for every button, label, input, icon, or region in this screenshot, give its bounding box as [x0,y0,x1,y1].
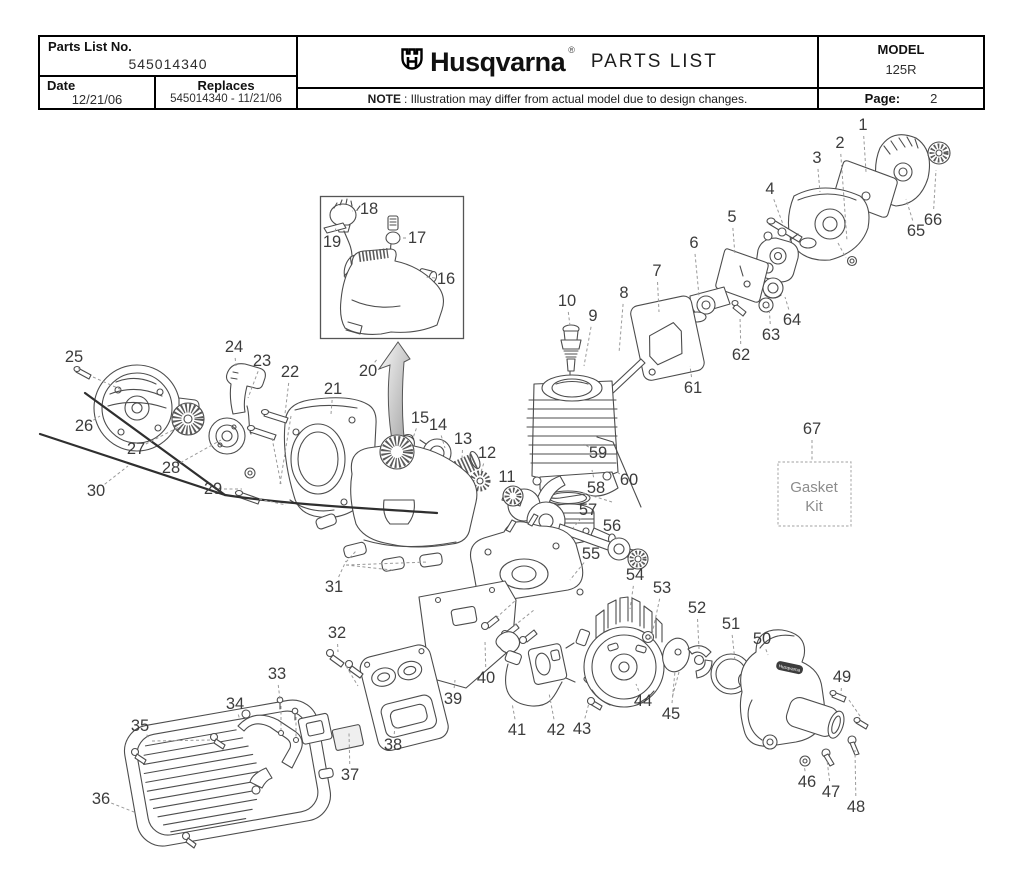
leader-line-64 [785,297,789,309]
part-carb-cover [788,188,869,260]
callout-60: 60 [620,471,638,489]
doc-title: PARTS LIST [591,51,718,73]
callout-65: 65 [907,222,925,240]
callout-48: 48 [847,798,865,816]
title-block-left: Parts List No. 545014340 Date 12/21/06 R… [40,37,298,108]
callout-9: 9 [588,307,597,325]
callout-53: 53 [653,579,671,597]
callout-39: 39 [444,690,462,708]
callout-51: 51 [722,615,740,633]
note-row: NOTE : Illustration may differ from actu… [298,89,817,108]
callout-26: 26 [75,417,93,435]
replaces-value: 545014340 - 11/21/06 [156,93,296,105]
callout-8: 8 [619,284,628,302]
exploded-parts-diagram: Husqvarna [0,0,1024,876]
leader-line-62 [740,317,741,344]
callout-43: 43 [573,720,591,738]
callout-5: 5 [727,208,736,226]
part-exhaust-plate [298,713,333,745]
inset-detail-box [321,197,464,339]
callout-67: 67 [803,420,821,438]
leader-line-6 [695,254,699,296]
page-label: Page: [865,91,900,106]
leader-line-9 [584,327,591,366]
brand-row: Husqvarna ® PARTS LIST [298,37,817,89]
note-text: : Illustration may differ from actual mo… [404,92,747,106]
leader-line-36 [111,803,134,812]
callout-49: 49 [833,668,851,686]
callout-47: 47 [822,783,840,801]
callout-64: 64 [783,311,801,329]
date-cell: Date 12/21/06 [40,77,156,108]
callout-52: 52 [688,599,706,617]
callout-1: 1 [858,116,867,134]
callout-16: 16 [437,270,455,288]
part-clamp-screw [822,749,834,766]
date-label: Date [47,78,75,93]
leader-line-52 [698,619,699,649]
leader-line-31 [339,561,346,577]
leader-line-48 [855,750,856,796]
part-clutch [688,646,712,678]
leader-line-8 [619,304,623,353]
callout-28: 28 [162,459,180,477]
callout-32: 32 [328,624,346,642]
page-cell: Page: 2 [819,89,983,108]
part-housing-screw [74,367,91,380]
model-cell: MODEL 125R [819,37,983,89]
part-primer-bulb [759,298,773,312]
callout-17: 17 [408,229,426,247]
part-cover-knob [928,142,950,164]
callout-46: 46 [798,773,816,791]
callout-56: 56 [603,517,621,535]
callout-20: 20 [359,362,377,380]
callout-30: 30 [87,482,105,500]
callout-24: 24 [225,338,243,356]
part-choke-plate [763,278,783,298]
model-label: MODEL [819,42,983,57]
replaces-label: Replaces [156,78,296,93]
leader-line-22 [285,383,289,414]
part-starter-pulley [209,418,245,454]
callout-45: 45 [662,705,680,723]
callout-57: 57 [579,501,597,519]
parts-list-no-value: 545014340 [40,56,296,72]
callout-40: 40 [477,669,495,687]
callout-42: 42 [547,721,565,739]
callout-50: 50 [753,630,771,648]
note-label: NOTE [368,92,401,106]
part-starter-handle [227,364,266,414]
title-block: Parts List No. 545014340 Date 12/21/06 R… [38,35,985,110]
callout-38: 38 [384,736,402,754]
callout-61: 61 [684,379,702,397]
callout-33: 33 [268,665,286,683]
date-value: 12/21/06 [40,92,154,107]
gasket-kit-box: Gasket Kit [778,462,851,526]
parts-list-no-label: Parts List No. [48,39,132,54]
callout-11: 11 [498,468,515,486]
callout-62: 62 [732,346,750,364]
date-replaces-row: Date 12/21/06 Replaces 545014340 - 11/21… [40,77,296,108]
callout-25: 25 [65,348,83,366]
callout-55: 55 [582,545,600,563]
callout-34: 34 [226,695,244,713]
part-clamp-bolt [848,736,859,755]
gasket-kit-line2: Kit [805,498,823,515]
callout-22: 22 [281,363,299,381]
leader-line-10 [568,312,570,326]
callout-21: 21 [324,380,342,398]
callout-23: 23 [253,352,271,370]
part-clamp-nut [800,756,810,766]
callout-15: 15 [411,409,429,427]
callout-44: 44 [634,692,652,710]
part-cover-screws [248,410,289,441]
part-muffler-gasket [332,724,364,750]
callout-54: 54 [626,566,644,584]
part-muffler-screws [327,650,364,679]
leader-line-43 [585,703,589,718]
callout-12: 12 [478,444,496,462]
callout-6: 6 [689,234,698,252]
husqvarna-crown-icon [397,46,427,78]
leader-line-30 [105,466,128,484]
leader-line-66 [934,170,936,209]
callout-66: 66 [924,211,942,229]
brand-wordmark: Husqvarna [430,47,565,78]
gasket-kit-line1: Gasket [790,479,838,496]
callout-36: 36 [92,790,110,808]
part-flywheel [584,597,664,707]
leader-line-15 [413,428,416,438]
callout-37: 37 [341,766,359,784]
callout-14: 14 [429,416,447,434]
part-ignition-module [528,629,590,685]
callout-10: 10 [558,292,576,310]
registered-mark: ® [568,45,575,55]
callout-3: 3 [812,149,821,167]
replaces-cell: Replaces 545014340 - 11/21/06 [156,77,296,108]
callout-4: 4 [765,180,774,198]
leader-line-41 [512,703,515,719]
page-number: 2 [930,91,937,106]
leader-line-28 [181,440,221,463]
model-value: 125R [819,62,983,77]
leader-line-45 [672,671,675,703]
callout-19: 19 [323,233,341,251]
parts-list-page: Parts List No. 545014340 Date 12/21/06 R… [0,0,1024,876]
part-bearing-small [503,486,523,506]
callout-63: 63 [762,326,780,344]
callout-7: 7 [652,262,661,280]
part-spark-plug [561,325,581,379]
callout-35: 35 [131,717,149,735]
part-bearing-main [608,538,648,569]
callout-18: 18 [360,200,378,218]
callout-13: 13 [454,430,472,448]
title-block-right: MODEL 125R Page: 2 [817,37,983,108]
callout-27: 27 [127,440,145,458]
parts-list-no-cell: Parts List No. 545014340 [40,37,296,77]
part-idle-screw [732,301,746,317]
callout-2: 2 [835,134,844,152]
callout-41: 41 [508,721,526,739]
callout-59: 59 [589,444,607,462]
title-block-center: Husqvarna ® PARTS LIST NOTE : Illustrati… [298,37,817,108]
callout-58: 58 [587,479,605,497]
callout-31: 31 [325,578,343,596]
callout-29: 29 [204,480,222,498]
part-recoil-spring [172,403,204,435]
